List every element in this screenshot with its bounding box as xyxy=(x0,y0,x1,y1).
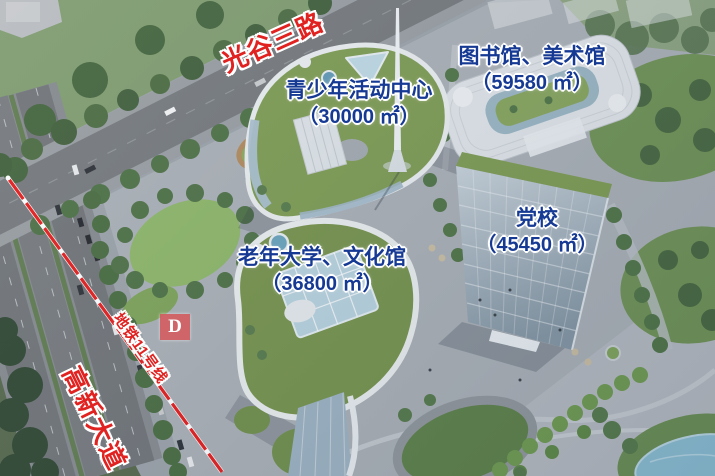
building-label-party-school: 党校 （45450 ㎡） xyxy=(476,206,597,258)
building-name: 党校 xyxy=(476,206,597,232)
building-area: （45450 ㎡） xyxy=(476,232,597,258)
building-name: 青少年活动中心 xyxy=(286,78,433,104)
building-label-youth-activity-center: 青少年活动中心 （30000 ㎡） xyxy=(286,78,433,130)
building-area: （30000 ㎡） xyxy=(286,104,433,130)
aerial-rendering: 光谷三路 高新大道 地铁11号线 D 青少年活动中心 （30000 ㎡） 图书馆… xyxy=(0,0,715,476)
building-area: （36800 ㎡） xyxy=(238,271,406,297)
building-label-senior-university-cultural-center: 老年大学、文化馆 （36800 ㎡） xyxy=(238,245,406,297)
building-name: 图书馆、美术馆 xyxy=(459,44,606,70)
building-name: 老年大学、文化馆 xyxy=(238,245,406,271)
building-area: （59580 ㎡） xyxy=(459,70,606,96)
metro-station-marker: D xyxy=(160,314,190,340)
building-label-library-art-museum: 图书馆、美术馆 （59580 ㎡） xyxy=(459,44,606,96)
